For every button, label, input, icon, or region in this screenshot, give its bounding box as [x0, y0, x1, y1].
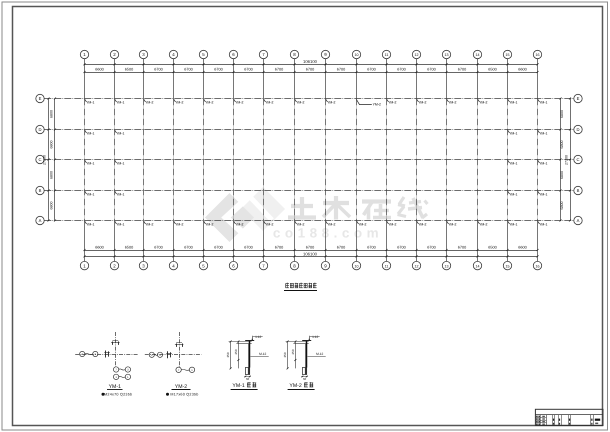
- svg-text:C: C: [38, 157, 41, 162]
- svg-text:YM-2: YM-2: [327, 223, 335, 227]
- svg-text:16: 16: [536, 53, 540, 57]
- svg-text:YM-2: YM-2: [327, 101, 335, 105]
- svg-text:14: 14: [476, 53, 480, 57]
- svg-text:YM-1: YM-1: [539, 101, 547, 105]
- svg-text:13: 13: [445, 53, 449, 57]
- svg-text:YM-2: YM-2: [175, 223, 183, 227]
- svg-text:106100: 106100: [303, 59, 318, 64]
- svg-text:6500: 6500: [488, 246, 496, 250]
- svg-text:YM-1: YM-1: [116, 101, 124, 105]
- svg-text:YM-1: YM-1: [116, 223, 124, 227]
- svg-text:27200: 27200: [43, 155, 47, 165]
- svg-text:6700: 6700: [427, 67, 435, 71]
- svg-text:YM-2: YM-2: [145, 223, 153, 227]
- svg-text:6800: 6800: [560, 141, 564, 149]
- svg-text:6700: 6700: [275, 67, 283, 71]
- svg-text:YM-1: YM-1: [116, 162, 124, 166]
- svg-text:6700: 6700: [458, 246, 466, 250]
- svg-text:350: 350: [226, 352, 230, 357]
- svg-text:10: 10: [355, 264, 359, 268]
- svg-text:YM-1: YM-1: [116, 193, 124, 197]
- svg-text:YM-1: YM-1: [232, 383, 245, 389]
- svg-text:YM-1: YM-1: [509, 132, 517, 136]
- svg-text:6700: 6700: [397, 67, 405, 71]
- svg-text:YM-2: YM-2: [448, 223, 456, 227]
- svg-text:1:12: 1:12: [255, 335, 261, 339]
- svg-text:YM-2: YM-2: [479, 223, 487, 227]
- svg-text:6600: 6600: [518, 246, 526, 250]
- svg-text:YM-2: YM-2: [388, 223, 396, 227]
- svg-text:6600: 6600: [95, 246, 103, 250]
- svg-text:D: D: [576, 127, 579, 132]
- svg-text:12: 12: [415, 264, 419, 268]
- svg-text:YM-2: YM-2: [418, 101, 426, 105]
- svg-text:27200: 27200: [564, 155, 568, 165]
- svg-text:YM-2: YM-2: [296, 101, 304, 105]
- svg-text:YM-1: YM-1: [509, 193, 517, 197]
- svg-text:6700: 6700: [458, 67, 466, 71]
- svg-text:250: 250: [234, 349, 238, 354]
- svg-text:M-12: M-12: [316, 352, 323, 356]
- svg-text:D: D: [38, 127, 41, 132]
- svg-text:E: E: [577, 96, 580, 101]
- svg-text:6700: 6700: [337, 246, 345, 250]
- svg-text:6700: 6700: [214, 246, 222, 250]
- svg-text:YM-1: YM-1: [86, 223, 94, 227]
- svg-text:350: 350: [283, 352, 287, 357]
- svg-text:6700: 6700: [214, 67, 222, 71]
- svg-text:YM-2: YM-2: [373, 102, 381, 106]
- svg-text:YM-2: YM-2: [205, 223, 213, 227]
- svg-text:6700: 6700: [306, 246, 314, 250]
- svg-text:A: A: [577, 218, 580, 223]
- svg-text:A: A: [39, 218, 42, 223]
- svg-text:6800: 6800: [49, 141, 53, 149]
- svg-text:YM-2: YM-2: [175, 101, 183, 105]
- svg-text:E: E: [39, 96, 42, 101]
- svg-text:6800: 6800: [560, 202, 564, 210]
- svg-text:6700: 6700: [367, 246, 375, 250]
- svg-text:YM-2: YM-2: [448, 101, 456, 105]
- svg-text:6700: 6700: [244, 246, 252, 250]
- svg-text:6800: 6800: [49, 171, 53, 179]
- svg-text:6700: 6700: [184, 246, 192, 250]
- svg-text:C: C: [576, 157, 579, 162]
- svg-text:15: 15: [506, 53, 510, 57]
- svg-text:14: 14: [476, 264, 480, 268]
- svg-text:YM-2: YM-2: [265, 101, 273, 105]
- svg-text:13: 13: [445, 264, 449, 268]
- svg-text:M24x70 Q235b: M24x70 Q235b: [104, 393, 132, 397]
- svg-text:6700: 6700: [154, 67, 162, 71]
- svg-text:6700: 6700: [337, 67, 345, 71]
- svg-text:60: 60: [303, 377, 307, 381]
- svg-text:10: 10: [355, 53, 359, 57]
- svg-text:6800: 6800: [49, 202, 53, 210]
- svg-text:YM-2: YM-2: [235, 101, 243, 105]
- svg-text:YM-1: YM-1: [509, 223, 517, 227]
- svg-text:6500: 6500: [125, 246, 133, 250]
- svg-text:B: B: [577, 188, 580, 193]
- svg-text:YM-1: YM-1: [86, 193, 94, 197]
- svg-text:6700: 6700: [306, 67, 314, 71]
- svg-text:YM-2: YM-2: [235, 223, 243, 227]
- svg-text:12: 12: [415, 53, 419, 57]
- svg-text:YM-2: YM-2: [205, 101, 213, 105]
- svg-text:6600: 6600: [518, 67, 526, 71]
- svg-text:YM-1: YM-1: [539, 162, 547, 166]
- svg-text:M17x60 Q235b: M17x60 Q235b: [170, 393, 198, 397]
- svg-text:YM-2: YM-2: [418, 223, 426, 227]
- svg-text:1:12: 1:12: [312, 335, 318, 339]
- svg-text:6800: 6800: [560, 110, 564, 118]
- svg-text:6700: 6700: [275, 246, 283, 250]
- svg-text:11: 11: [385, 53, 389, 57]
- svg-text:6700: 6700: [244, 67, 252, 71]
- svg-text:YM-2: YM-2: [145, 101, 153, 105]
- svg-text:YM-1: YM-1: [116, 132, 124, 136]
- svg-text:6500: 6500: [488, 67, 496, 71]
- svg-text:6800: 6800: [49, 110, 53, 118]
- svg-text:6700: 6700: [154, 246, 162, 250]
- svg-text:6700: 6700: [397, 246, 405, 250]
- svg-text:60: 60: [246, 377, 250, 381]
- svg-text:16: 16: [536, 264, 540, 268]
- svg-text:co188.com: co188.com: [273, 226, 383, 241]
- svg-text:250: 250: [291, 349, 295, 354]
- svg-text:6600: 6600: [95, 67, 103, 71]
- svg-text:YM-1: YM-1: [509, 101, 517, 105]
- svg-text:YM-2: YM-2: [265, 223, 273, 227]
- svg-text:B: B: [39, 188, 42, 193]
- svg-text:6700: 6700: [427, 246, 435, 250]
- svg-text:M-12: M-12: [259, 352, 266, 356]
- svg-text:YM-2: YM-2: [358, 223, 366, 227]
- svg-text:YM-2: YM-2: [479, 101, 487, 105]
- svg-text:YM-1: YM-1: [86, 132, 94, 136]
- svg-text:YM-1: YM-1: [86, 101, 94, 105]
- svg-text:6500: 6500: [125, 67, 133, 71]
- svg-text:106100: 106100: [303, 252, 318, 257]
- svg-text:YM-1: YM-1: [509, 162, 517, 166]
- svg-text:YM-1: YM-1: [539, 193, 547, 197]
- svg-text:YM-1: YM-1: [86, 162, 94, 166]
- svg-text:YM-1: YM-1: [539, 132, 547, 136]
- svg-text:YM-2: YM-2: [296, 223, 304, 227]
- svg-text:15: 15: [506, 264, 510, 268]
- svg-text:YM-2: YM-2: [289, 383, 302, 389]
- svg-text:11: 11: [385, 264, 389, 268]
- svg-text:6700: 6700: [184, 67, 192, 71]
- svg-text:6700: 6700: [367, 67, 375, 71]
- svg-text:6800: 6800: [560, 171, 564, 179]
- svg-text:YM-1: YM-1: [539, 223, 547, 227]
- svg-text:YM-2: YM-2: [388, 101, 396, 105]
